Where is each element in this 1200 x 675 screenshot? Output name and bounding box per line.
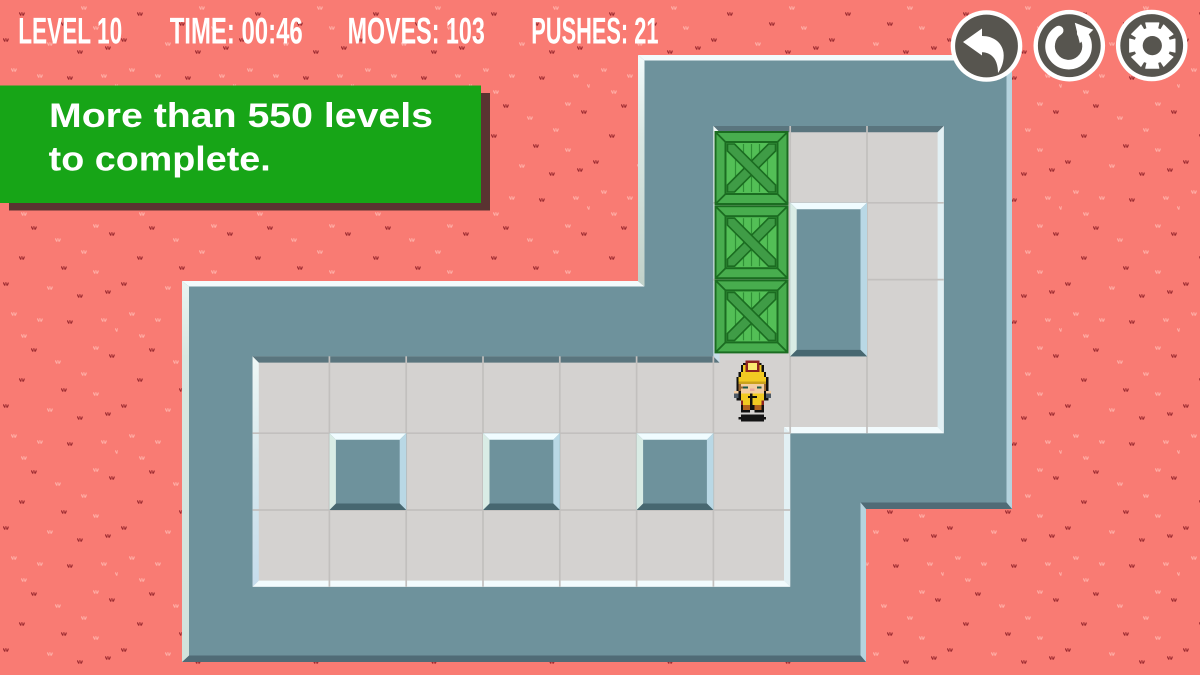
svg-text:MOVES: 103: MOVES: 103 xyxy=(348,10,485,51)
svg-text:TIME: 00:46: TIME: 00:46 xyxy=(170,10,303,51)
svg-text:PUSHES: 21: PUSHES: 21 xyxy=(531,10,658,51)
svg-text:LEVEL 10: LEVEL 10 xyxy=(18,10,122,51)
svg-text:More than 550 levels: More than 550 levels xyxy=(49,97,433,135)
svg-text:to complete.: to complete. xyxy=(49,140,271,178)
